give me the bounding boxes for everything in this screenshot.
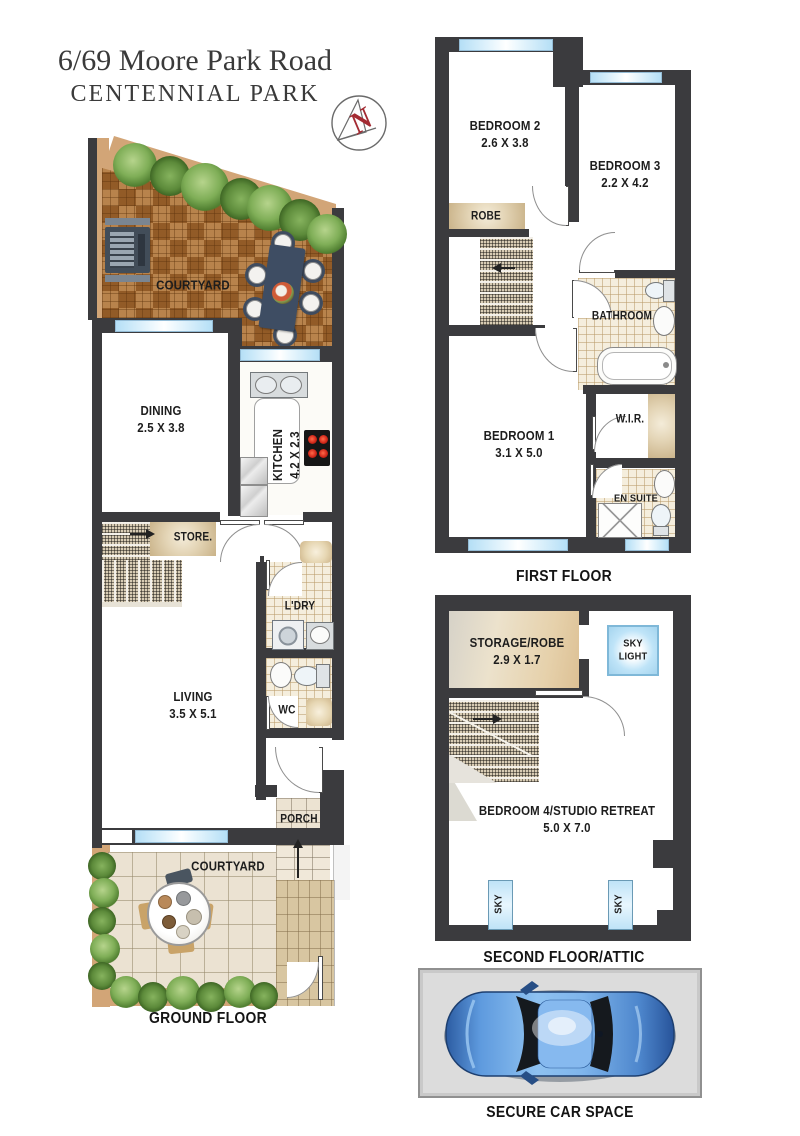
room-dims: 3.5 X 5.1 (169, 706, 216, 723)
stair-direction-arrow (130, 533, 147, 535)
wall (586, 458, 690, 468)
stair-treads (480, 237, 533, 325)
wall (435, 325, 545, 336)
floor-mat (300, 541, 332, 563)
bathroom-label: BATHROOM (592, 310, 652, 325)
plant (90, 934, 120, 964)
wall (88, 138, 97, 320)
address-line: 6/69 Moore Park Road (40, 44, 350, 78)
room-name: BEDROOM 4/STUDIO RETREAT (479, 803, 655, 820)
plant (250, 982, 278, 1010)
courtyard-bottom-label: COURTYARD (191, 859, 265, 876)
bedroom2-label: BEDROOM 2 2.6 X 3.8 (470, 118, 541, 152)
stair-direction-arrow (473, 718, 494, 720)
plate (176, 891, 191, 906)
burner (308, 449, 317, 458)
window (115, 320, 213, 332)
room-dims: 2.6 X 3.8 (470, 135, 541, 152)
wall (653, 840, 675, 868)
appliance (240, 457, 268, 485)
window (459, 39, 553, 51)
skylight-line2: LIGHT (619, 650, 648, 663)
outdoor-dining-table (246, 230, 326, 345)
plant (138, 982, 168, 1012)
chair (304, 262, 322, 280)
wall (449, 229, 529, 237)
store-label: STORE. (174, 531, 213, 546)
second-floor-caption: SECOND FLOOR/ATTIC (446, 949, 682, 967)
room-name: STORAGE/ROBE (470, 635, 565, 652)
window (590, 72, 662, 83)
burner (308, 435, 317, 444)
room-dims: 5.0 X 7.0 (479, 820, 655, 837)
wall (579, 611, 589, 625)
car-top-view (440, 976, 680, 1090)
skylight-line1: SKY (619, 637, 648, 650)
window (468, 539, 568, 551)
stair-edge (102, 602, 182, 607)
room-name: BEDROOM 2 (470, 118, 541, 135)
tub-bowl (310, 626, 330, 644)
burner (319, 435, 328, 444)
suburb-line: CENTENNIAL PARK (40, 81, 350, 108)
front-door-arc (275, 747, 319, 793)
room-name: DINING (137, 403, 184, 420)
toilet (651, 504, 671, 528)
sky-right-label: SKY (613, 894, 626, 914)
toilet-tank (663, 280, 675, 302)
wall (435, 37, 449, 553)
wall (583, 385, 690, 394)
side-gap (333, 845, 350, 900)
bedroom4-label: BEDROOM 4/STUDIO RETREAT 5.0 X 7.0 (479, 803, 655, 837)
wall (435, 595, 449, 941)
plant (166, 976, 200, 1010)
basin (653, 306, 675, 336)
room-name: KITCHEN (270, 429, 287, 481)
ground-floor-caption: GROUND FLOOR (100, 1010, 316, 1028)
wc-label: WC (278, 704, 295, 719)
laundry-label: L'DRY (285, 600, 315, 615)
wall (435, 925, 691, 941)
room-name: BEDROOM 1 (484, 428, 555, 445)
window (135, 830, 228, 843)
wall (675, 70, 691, 553)
wall (657, 910, 675, 925)
bedroom1-label: BEDROOM 1 3.1 X 5.0 (484, 428, 555, 462)
dining-label: DINING 2.5 X 3.8 (137, 403, 184, 437)
plate (162, 915, 176, 929)
arrow-head (493, 714, 507, 724)
toilet-tank (316, 664, 330, 688)
wir-shelving (648, 394, 675, 460)
room-name: BEDROOM 3 (590, 158, 661, 175)
wall (303, 512, 344, 522)
plant (89, 878, 119, 908)
chair (248, 266, 266, 284)
first-floor-plan: BEDROOM 2 2.6 X 3.8 BEDROOM 3 2.2 X 4.2 … (433, 30, 695, 592)
kitchen-label: KITCHEN 4.2 X 2.3 (270, 429, 304, 481)
round-table-setting (134, 865, 224, 960)
wall (256, 556, 266, 800)
car-space-caption: SECURE CAR SPACE (432, 1104, 688, 1122)
plant (88, 852, 116, 880)
plate (158, 895, 172, 909)
room-name: LIVING (169, 689, 216, 706)
room-dims: 2.9 X 1.7 (470, 652, 565, 669)
chair (302, 294, 320, 312)
second-floor-plan: SKY LIGHT SKY SKY STORAGE/ROBE 2.9 X 1.7… (433, 593, 695, 975)
robe-label: ROBE (471, 210, 501, 225)
bbq-grill (105, 218, 150, 282)
living-label: LIVING 3.5 X 5.1 (169, 689, 216, 723)
ensuite-label: EN SUITE (614, 493, 658, 506)
stair-treads (102, 560, 182, 604)
skylight-label: SKY LIGHT (619, 637, 648, 662)
car-space: SECURE CAR SPACE (418, 968, 702, 1126)
room-dims: 2.2 X 4.2 (590, 175, 661, 192)
bedroom3-label: BEDROOM 3 2.2 X 4.2 (590, 158, 661, 192)
burner (319, 449, 328, 458)
courtyard-top-label: COURTYARD (156, 278, 230, 295)
plant (110, 976, 142, 1008)
page-title: 6/69 Moore Park Road CENTENNIAL PARK (40, 44, 350, 108)
wall (320, 770, 344, 832)
wall (332, 346, 344, 600)
wall (332, 600, 344, 740)
room-dims: 4.2 X 2.3 (287, 429, 304, 481)
floor-mat (306, 698, 332, 726)
arrow-head (293, 834, 303, 848)
plate (186, 909, 202, 925)
window (625, 539, 669, 551)
sink-bowl (255, 376, 277, 394)
toilet-tank (653, 526, 669, 536)
ground-floor-plan: COURTYARD DINING 2.5 X 3.8 KITCHEN 4.2 X… (88, 130, 350, 1040)
door-leaf (535, 690, 583, 696)
wall (615, 270, 690, 278)
washing-machine (272, 620, 304, 650)
plant (196, 982, 226, 1012)
entry-steps (276, 845, 330, 880)
plate (176, 925, 190, 939)
sink-bowl (280, 376, 302, 394)
food-bowl (272, 282, 294, 304)
room-dims: 3.1 X 5.0 (484, 445, 555, 462)
wall (673, 595, 691, 941)
floor-plan-page: 6/69 Moore Park Road CENTENNIAL PARK N (0, 0, 800, 1136)
wc-basin (270, 662, 292, 688)
porch-label: PORCH (280, 813, 317, 828)
sky-left-label: SKY (493, 894, 506, 914)
wall (255, 785, 277, 797)
arrow-head (487, 263, 501, 273)
first-floor-caption: FIRST FLOOR (446, 568, 682, 586)
skylight-box: SKY LIGHT (607, 625, 659, 676)
arrow-head (146, 529, 160, 539)
wall (228, 330, 240, 516)
window (240, 349, 320, 361)
shower (598, 503, 642, 538)
wall (92, 512, 220, 522)
wall (435, 595, 691, 611)
tub-drain (663, 362, 669, 368)
plant (88, 907, 116, 935)
storage-robe-label: STORAGE/ROBE 2.9 X 1.7 (470, 635, 565, 669)
room-dims: 2.5 X 3.8 (137, 420, 184, 437)
door-gap (102, 830, 132, 843)
wall (92, 318, 102, 848)
appliance (240, 485, 268, 517)
wir-label: W.I.R. (616, 413, 645, 428)
